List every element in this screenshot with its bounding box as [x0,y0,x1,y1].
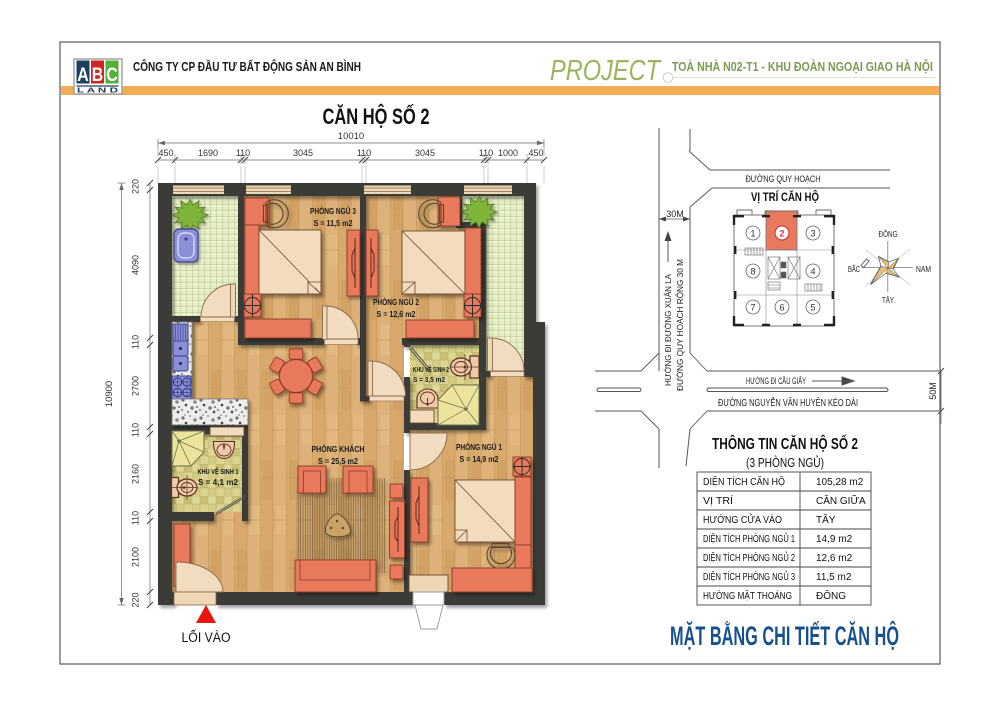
svg-text:S = 12,6 m2: S = 12,6 m2 [377,309,416,319]
svg-text:TÂY: TÂY [882,295,894,305]
svg-text:10900: 10900 [104,381,115,407]
svg-text:PHÒNG NGỦ 3: PHÒNG NGỦ 3 [310,205,356,216]
svg-text:1000: 1000 [498,148,518,158]
svg-text:2: 2 [779,229,784,239]
svg-text:S = 4,1 m2: S = 4,1 m2 [198,477,238,487]
svg-text:220: 220 [131,592,141,607]
svg-text:TOÀ NHÀ N02-T1 - KHU ĐOÀN NGOẠ: TOÀ NHÀ N02-T1 - KHU ĐOÀN NGOẠI GIAO HÀ … [672,59,933,74]
svg-text:2700: 2700 [131,376,141,396]
svg-text:110: 110 [479,148,493,158]
svg-text:A: A [77,65,89,86]
svg-text:L A N D: L A N D [77,86,119,95]
svg-text:110: 110 [236,148,250,158]
svg-text:S = 25,5 m2: S = 25,5 m2 [318,456,358,466]
svg-text:110: 110 [131,423,141,437]
svg-text:CÔNG TY CP ĐẦU TƯ BẤT ĐỘNG SẢN: CÔNG TY CP ĐẦU TƯ BẤT ĐỘNG SẢN AN BÌNH [133,59,361,74]
svg-text:VỊ TRÍ: VỊ TRÍ [703,494,733,507]
svg-text:(3 PHÒNG NGỦ): (3 PHÒNG NGỦ) [746,455,824,470]
svg-text:S = 3,5 m2: S = 3,5 m2 [413,375,445,384]
svg-text:C: C [106,65,118,86]
svg-text:B: B [92,65,104,86]
svg-text:7: 7 [750,303,755,313]
svg-text:4090: 4090 [131,255,141,275]
svg-text:MẶT BẰNG CHI TIẾT CĂN HỘ: MẶT BẰNG CHI TIẾT CĂN HỘ [670,620,899,651]
svg-text:450: 450 [158,148,173,158]
svg-text:VỊ TRÍ CĂN HỘ: VỊ TRÍ CĂN HỘ [751,189,819,204]
svg-text:2100: 2100 [131,547,141,567]
svg-text:450: 450 [528,148,543,158]
svg-text:KHU VỆ SINH 1: KHU VỆ SINH 1 [198,467,239,476]
svg-text:110: 110 [357,148,371,158]
svg-text:6: 6 [779,303,784,313]
svg-text:ĐƯỜNG NGUYỄN VĂN HUYÊN KÉO DÀI: ĐƯỜNG NGUYỄN VĂN HUYÊN KÉO DÀI [718,396,858,409]
svg-text:3045: 3045 [415,148,435,158]
svg-text:HƯỚNG ĐI ĐƯỜNG XUÂN LA: HƯỚNG ĐI ĐƯỜNG XUÂN LA [664,273,673,386]
svg-text:ĐÔNG: ĐÔNG [816,589,846,602]
svg-text:PHÒNG KHÁCH: PHÒNG KHÁCH [312,443,365,454]
svg-text:DIỆN TÍCH PHÒNG NGỦ 3: DIỆN TÍCH PHÒNG NGỦ 3 [703,570,795,583]
svg-text:30M: 30M [666,209,684,219]
svg-text:BẮC: BẮC [848,264,860,274]
svg-text:HƯỚNG MẶT THOÁNG: HƯỚNG MẶT THOÁNG [703,589,792,602]
svg-text:S = 14,9 m2: S = 14,9 m2 [460,454,499,464]
svg-text:8: 8 [750,267,755,277]
svg-text:DIỆN TÍCH PHÒNG NGỦ 2: DIỆN TÍCH PHÒNG NGỦ 2 [703,551,795,564]
svg-text:105,28 m2: 105,28 m2 [816,477,864,488]
svg-text:KHU VỆ SINH 2: KHU VỆ SINH 2 [413,365,449,374]
svg-text:4: 4 [810,267,815,277]
svg-text:5: 5 [810,303,815,313]
svg-text:220: 220 [131,179,141,194]
svg-text:TÂY: TÂY [816,513,836,526]
svg-text:PROJECT: PROJECT [550,55,662,87]
svg-text:HƯỚNG ĐI CẦU GIẤY: HƯỚNG ĐI CẦU GIẤY [746,376,806,386]
svg-text:HƯỚNG CỬA VÀO: HƯỚNG CỬA VÀO [703,513,782,526]
svg-text:ĐƯỜNG QUY HOẠCH: ĐƯỜNG QUY HOẠCH [746,174,821,184]
svg-text:110: 110 [131,335,141,349]
svg-text:11,5 m2: 11,5 m2 [816,572,852,583]
svg-text:12,6 m2: 12,6 m2 [816,553,853,564]
svg-text:DIỆN TÍCH PHÒNG NGỦ 1: DIỆN TÍCH PHÒNG NGỦ 1 [703,532,795,545]
svg-text:PHÒNG NGỦ 1: PHÒNG NGỦ 1 [456,441,502,452]
svg-text:NAM: NAM [916,264,931,274]
svg-text:2160: 2160 [131,464,141,484]
svg-text:PHÒNG NGỦ 2: PHÒNG NGỦ 2 [373,296,419,307]
svg-text:1: 1 [750,229,755,239]
svg-text:S = 11,5 m2: S = 11,5 m2 [314,218,353,228]
svg-text:LỐI VÀO: LỐI VÀO [182,630,231,645]
svg-text:CĂN HỘ SỐ 2: CĂN HỘ SỐ 2 [323,103,430,129]
svg-text:1690: 1690 [198,148,218,158]
svg-text:50M: 50M [928,382,938,400]
svg-text:CĂN GIỮA: CĂN GIỮA [816,494,866,507]
svg-text:110: 110 [131,511,141,525]
svg-text:ĐƯỜNG QUY HOẠCH RỘNG 30 M: ĐƯỜNG QUY HOẠCH RỘNG 30 M [675,259,685,391]
svg-text:DIỆN TÍCH CĂN HỘ: DIỆN TÍCH CĂN HỘ [703,475,785,488]
svg-text:ĐÔNG: ĐÔNG [879,229,898,239]
svg-text:10010: 10010 [338,131,364,142]
svg-text:3: 3 [810,229,815,239]
svg-text:THÔNG TIN CĂN HỘ SỐ 2: THÔNG TIN CĂN HỘ SỐ 2 [712,435,858,453]
svg-text:14,9 m2: 14,9 m2 [816,534,853,545]
svg-text:3045: 3045 [293,148,313,158]
